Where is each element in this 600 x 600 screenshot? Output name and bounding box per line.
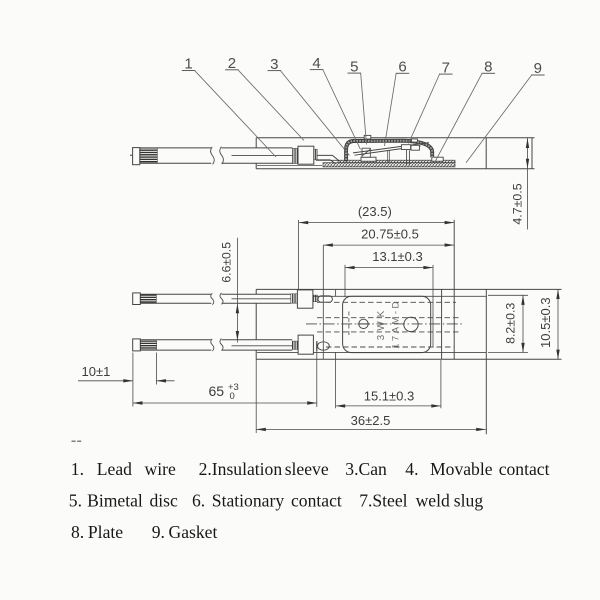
- svg-text:wire: wire: [145, 459, 176, 479]
- svg-text:6.6±0.5: 6.6±0.5: [220, 242, 234, 283]
- svg-text:contact: contact: [499, 459, 550, 479]
- svg-text:0: 0: [230, 391, 235, 402]
- svg-text:15.1±0.3: 15.1±0.3: [364, 388, 415, 403]
- svg-text:10.5±0.3: 10.5±0.3: [538, 297, 553, 348]
- svg-text:20.75±0.5: 20.75±0.5: [361, 227, 419, 242]
- svg-text:contact: contact: [291, 491, 342, 511]
- svg-text:10±1: 10±1: [82, 364, 111, 379]
- svg-text:Gasket: Gasket: [169, 522, 218, 542]
- svg-text:(23.5): (23.5): [358, 204, 392, 219]
- svg-text:13.1±0.3: 13.1±0.3: [372, 249, 423, 264]
- svg-text:65: 65: [209, 383, 225, 399]
- svg-text:Lead: Lead: [97, 459, 132, 479]
- svg-text:slug: slug: [454, 491, 484, 511]
- svg-text:1.: 1.: [71, 459, 84, 479]
- svg-text:weld: weld: [416, 491, 450, 511]
- svg-text:4.: 4.: [405, 459, 418, 479]
- svg-text:Bimetal: Bimetal: [87, 491, 143, 511]
- svg-text:6.: 6.: [192, 491, 205, 511]
- svg-text:3.Can: 3.Can: [345, 459, 387, 479]
- svg-text:sleeve: sleeve: [285, 459, 329, 479]
- svg-text:7.Steel: 7.Steel: [359, 491, 407, 511]
- svg-text:4.7±0.5: 4.7±0.5: [510, 183, 524, 224]
- svg-text:2.Insulation: 2.Insulation: [199, 459, 283, 479]
- svg-text:8.: 8.: [71, 522, 84, 542]
- svg-text:9.: 9.: [152, 522, 165, 542]
- svg-text:Stationary: Stationary: [212, 491, 285, 511]
- svg-text:5.: 5.: [69, 491, 82, 511]
- svg-text:36±2.5: 36±2.5: [351, 413, 391, 428]
- svg-text:disc: disc: [150, 491, 179, 511]
- svg-text:17AM-D: 17AM-D: [391, 299, 402, 349]
- svg-text:3WK: 3WK: [376, 307, 387, 341]
- svg-text:Plate: Plate: [88, 522, 123, 542]
- svg-text:8.2±0.3: 8.2±0.3: [504, 303, 518, 344]
- svg-text:Movable: Movable: [430, 459, 493, 479]
